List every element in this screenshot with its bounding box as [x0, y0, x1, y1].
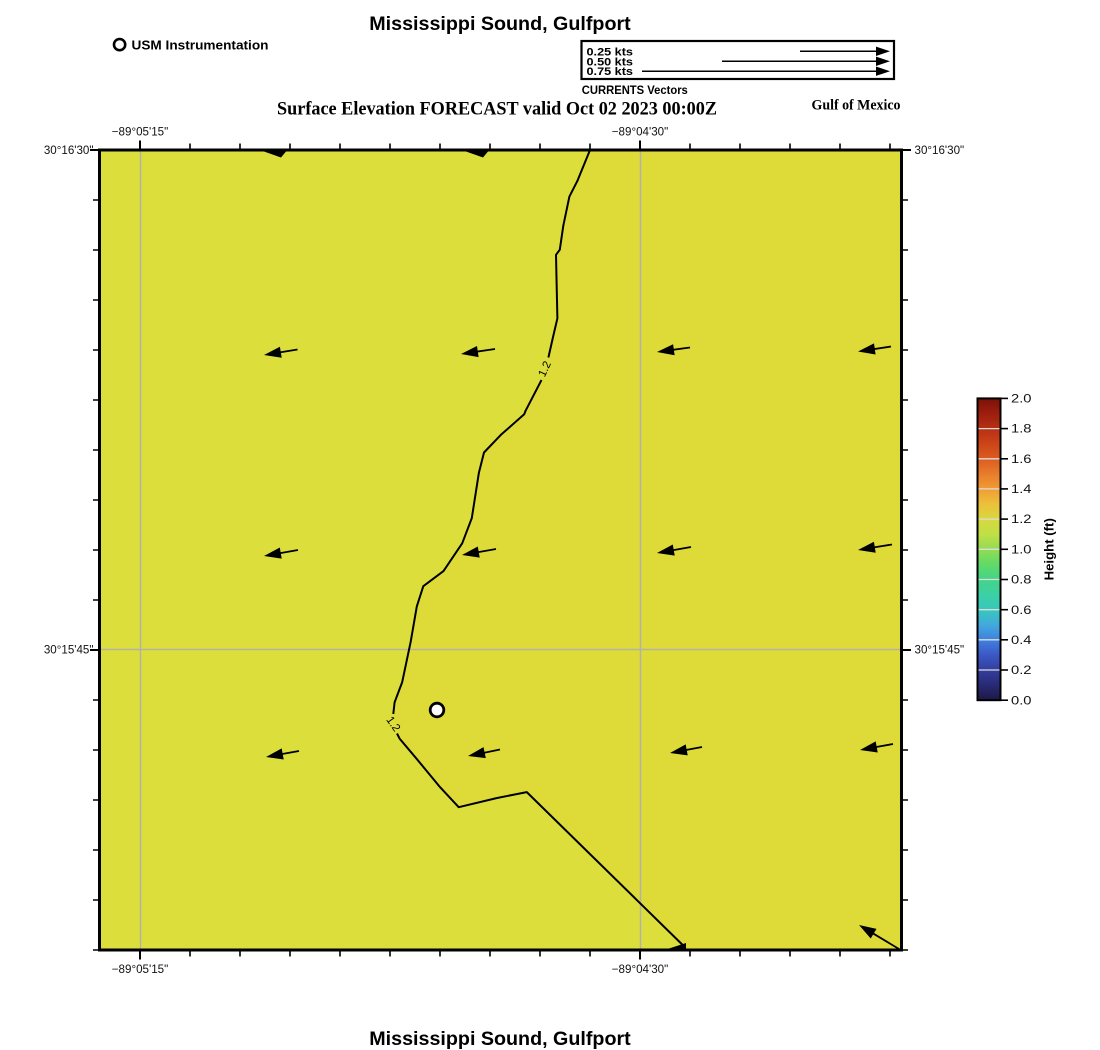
svg-text:Surface Elevation FORECAST val: Surface Elevation FORECAST valid Oct 02 … — [277, 99, 717, 120]
svg-text:1.2: 1.2 — [1011, 514, 1032, 526]
svg-text:0.75 kts: 0.75 kts — [587, 66, 634, 78]
svg-text:2.0: 2.0 — [1011, 394, 1032, 406]
svg-text:1.4: 1.4 — [1011, 484, 1032, 496]
svg-text:−89°04'30": −89°04'30" — [612, 126, 668, 139]
svg-text:0.4: 0.4 — [1011, 635, 1032, 647]
svg-text:30°15'45": 30°15'45" — [44, 644, 94, 657]
svg-text:30°15'45": 30°15'45" — [915, 644, 965, 657]
svg-text:Mississippi Sound, Gulfport: Mississippi Sound, Gulfport — [369, 1028, 631, 1050]
svg-text:Height (ft): Height (ft) — [1042, 518, 1057, 580]
svg-text:−89°05'15": −89°05'15" — [112, 126, 168, 139]
svg-text:1.0: 1.0 — [1011, 544, 1032, 556]
svg-text:30°16'30": 30°16'30" — [44, 144, 94, 157]
svg-text:0.6: 0.6 — [1011, 605, 1032, 617]
svg-text:1.6: 1.6 — [1011, 454, 1032, 466]
svg-text:0.0: 0.0 — [1011, 695, 1032, 707]
svg-text:0.2: 0.2 — [1011, 665, 1032, 677]
svg-text:Gulf of Mexico: Gulf of Mexico — [812, 97, 901, 114]
svg-text:−89°05'15": −89°05'15" — [112, 963, 168, 976]
svg-text:1.8: 1.8 — [1011, 424, 1032, 436]
svg-text:Mississippi Sound, Gulfport: Mississippi Sound, Gulfport — [369, 13, 631, 35]
svg-text:−89°04'30": −89°04'30" — [612, 963, 668, 976]
svg-text:USM Instrumentation: USM Instrumentation — [132, 37, 269, 52]
svg-text:0.8: 0.8 — [1011, 575, 1032, 587]
svg-text:CURRENTS Vectors: CURRENTS Vectors — [582, 83, 688, 97]
svg-text:30°16'30": 30°16'30" — [915, 144, 965, 157]
